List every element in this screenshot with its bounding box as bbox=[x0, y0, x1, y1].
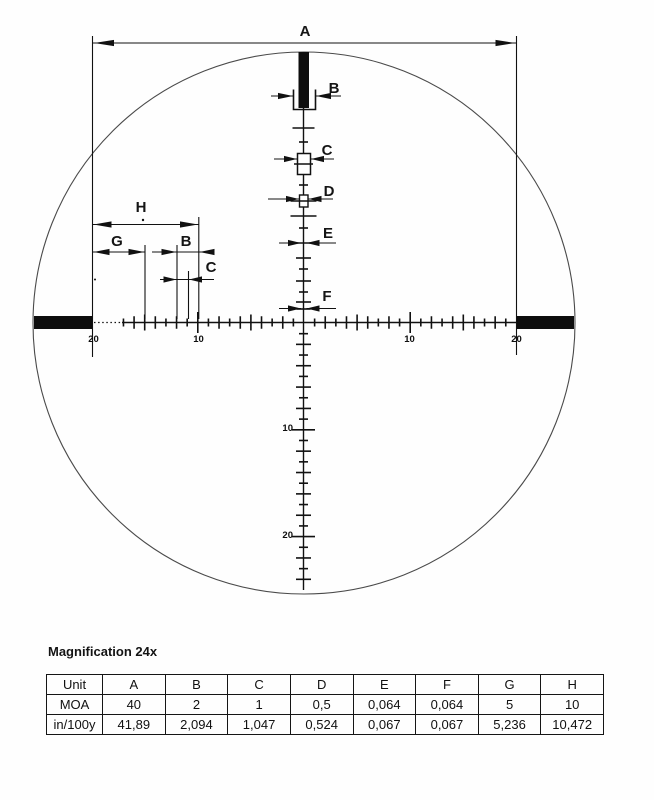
table-cell: 40 bbox=[103, 695, 166, 715]
reticle-spec-page: A B C D E F H G B C 20 10 10 20 10 20 Ma… bbox=[0, 0, 654, 800]
dimension-arrowhead bbox=[307, 240, 320, 246]
dim-label-a: A bbox=[295, 24, 315, 39]
stray-dot-2 bbox=[94, 279, 96, 281]
dim-label-f: F bbox=[319, 289, 335, 304]
table-cell: 0,5 bbox=[290, 695, 353, 715]
header-cell: C bbox=[228, 675, 291, 695]
right-heavy-bar bbox=[516, 316, 574, 329]
dimension-arrowhead bbox=[162, 249, 177, 255]
dim-label-b-left: B bbox=[178, 234, 194, 249]
table-cell: 0,067 bbox=[353, 715, 416, 735]
axis-10-down: 10 bbox=[271, 424, 293, 434]
dimension-arrowhead bbox=[288, 305, 301, 311]
dim-label-h: H bbox=[131, 200, 151, 215]
table-cell: 5 bbox=[478, 695, 541, 715]
axis-10-right: 10 bbox=[400, 335, 419, 345]
dimension-arrowhead bbox=[164, 276, 177, 282]
table-cell: 2 bbox=[165, 695, 228, 715]
table-cell: 5,236 bbox=[478, 715, 541, 735]
table-cell: 41,89 bbox=[103, 715, 166, 735]
axis-20-down: 20 bbox=[271, 531, 293, 541]
table-cell: MOA bbox=[47, 695, 103, 715]
header-cell: Unit bbox=[47, 675, 103, 695]
table-cell: 10,472 bbox=[541, 715, 604, 735]
dimension-arrowhead bbox=[288, 240, 301, 246]
header-cell: E bbox=[353, 675, 416, 695]
table-cell: 0,064 bbox=[416, 695, 479, 715]
header-cell: G bbox=[478, 675, 541, 695]
dim-label-g: G bbox=[108, 234, 126, 249]
axis-20-left: 20 bbox=[84, 335, 103, 345]
dim-label-b-top: B bbox=[326, 81, 342, 96]
table-cell: 10 bbox=[541, 695, 604, 715]
table-cell: 1 bbox=[228, 695, 291, 715]
stray-dot bbox=[142, 219, 144, 221]
dimension-arrowhead bbox=[189, 276, 202, 282]
dim-label-c-top: C bbox=[319, 143, 335, 158]
table-cell: 1,047 bbox=[228, 715, 291, 735]
header-cell: A bbox=[103, 675, 166, 695]
dimension-arrowhead bbox=[200, 249, 215, 255]
dimension-arrowhead bbox=[278, 93, 293, 99]
dimension-arrowhead bbox=[94, 249, 110, 255]
dimension-arrowhead bbox=[94, 40, 114, 46]
header-cell: D bbox=[290, 675, 353, 695]
magnification-caption: Magnification 24x bbox=[48, 644, 157, 659]
dimension-arrowhead bbox=[496, 40, 516, 46]
reticle-dimensions-table: Unit A B C D E F G H MOA 40 2 1 0,5 0,06… bbox=[46, 674, 604, 735]
dimension-arrowhead bbox=[180, 221, 198, 227]
dimension-arrowhead bbox=[94, 221, 112, 227]
dim-label-e: E bbox=[320, 226, 336, 241]
dim-label-d: D bbox=[321, 184, 337, 199]
axis-10-left: 10 bbox=[189, 335, 208, 345]
left-heavy-bar bbox=[34, 316, 92, 329]
header-cell: H bbox=[541, 675, 604, 695]
table-cell: 0,524 bbox=[290, 715, 353, 735]
dimension-arrowhead bbox=[284, 156, 297, 162]
top-heavy-post bbox=[299, 52, 310, 108]
table-row-in100y: in/100y 41,89 2,094 1,047 0,524 0,067 0,… bbox=[47, 715, 604, 735]
table-cell: in/100y bbox=[47, 715, 103, 735]
axis-20-right: 20 bbox=[507, 335, 526, 345]
table-row-moa: MOA 40 2 1 0,5 0,064 0,064 5 10 bbox=[47, 695, 604, 715]
table-cell: 2,094 bbox=[165, 715, 228, 735]
dim-label-c-left: C bbox=[203, 260, 219, 275]
dimension-arrowhead bbox=[129, 249, 145, 255]
dimension-arrowhead bbox=[307, 305, 320, 311]
table-cell: 0,067 bbox=[416, 715, 479, 735]
header-cell: F bbox=[416, 675, 479, 695]
table-cell: 0,064 bbox=[353, 695, 416, 715]
table-header-row: Unit A B C D E F G H bbox=[47, 675, 604, 695]
header-cell: B bbox=[165, 675, 228, 695]
